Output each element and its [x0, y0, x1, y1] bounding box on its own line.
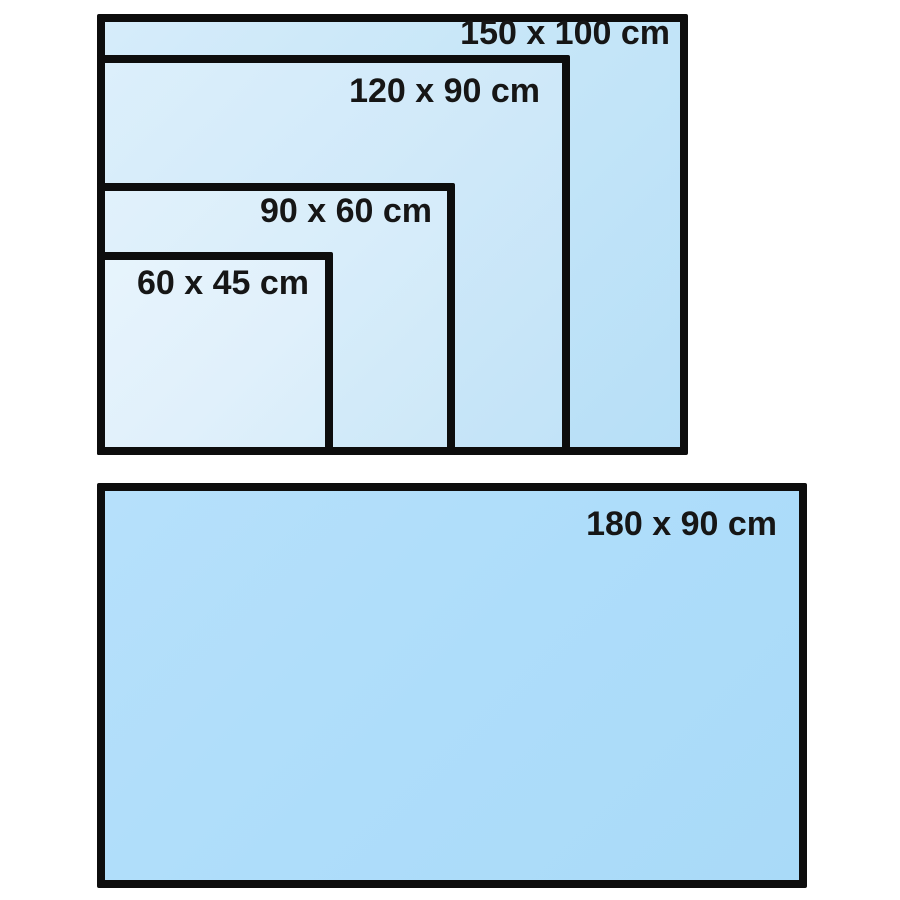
- size-label-180x90: 180 x 90 cm: [586, 507, 777, 543]
- size-label-60x45: 60 x 45 cm: [137, 266, 309, 302]
- size-label-90x60: 90 x 60 cm: [260, 194, 432, 230]
- size-label-120x90: 120 x 90 cm: [349, 74, 540, 110]
- size-rect-180x90: [97, 483, 807, 888]
- size-comparison-diagram: 150 x 100 cm 120 x 90 cm 90 x 60 cm 60 x…: [0, 0, 900, 900]
- size-label-150x100: 150 x 100 cm: [460, 16, 670, 52]
